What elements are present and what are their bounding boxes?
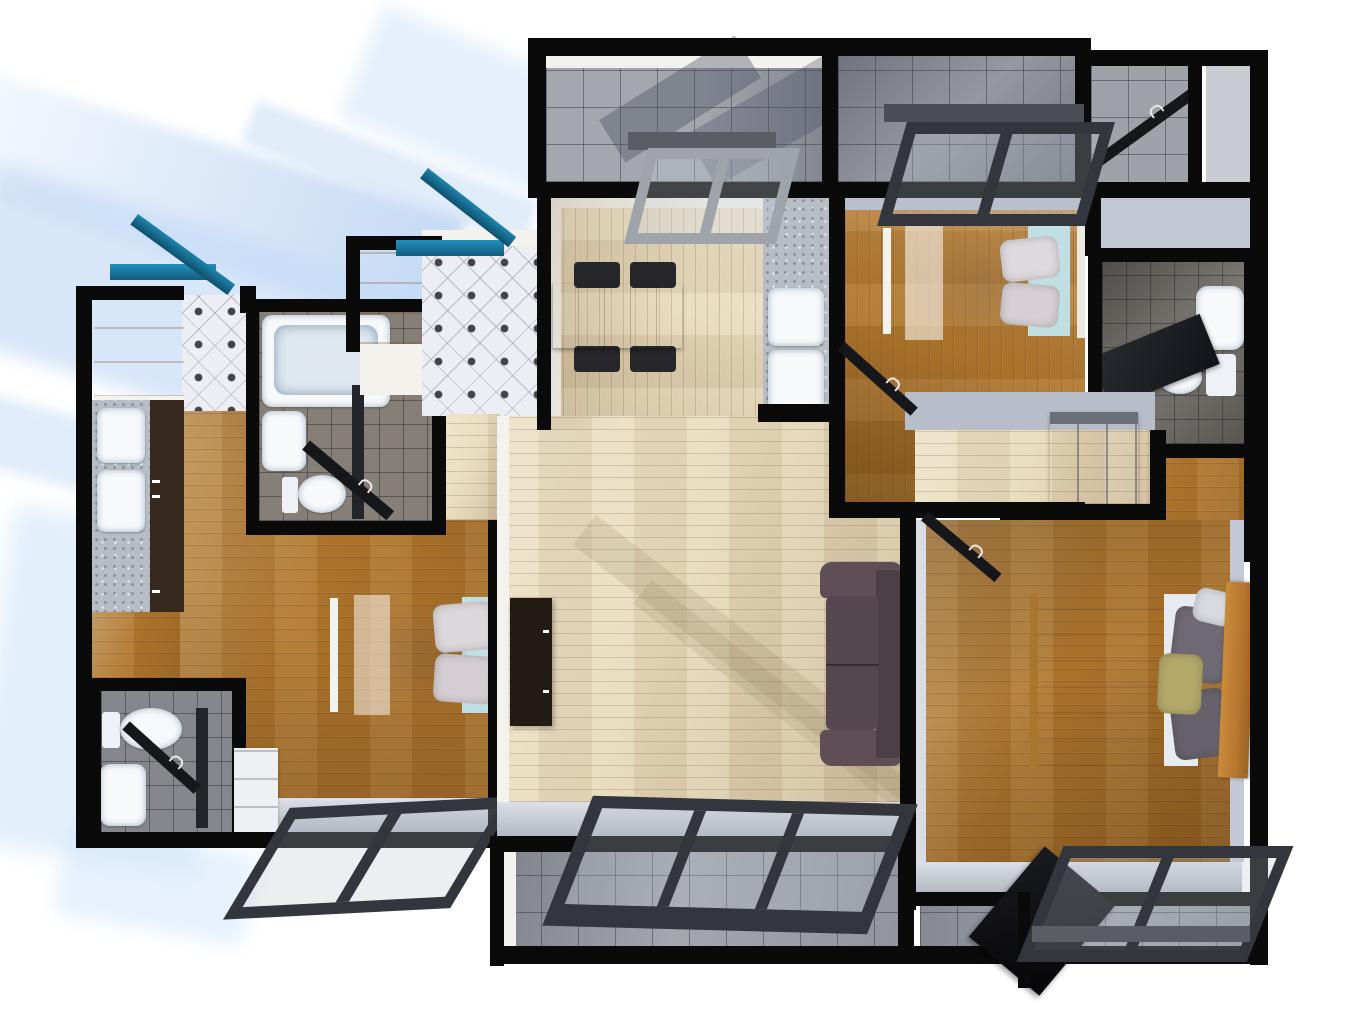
bedroom1-window-lintel bbox=[884, 104, 1084, 122]
wall-west-upper bbox=[528, 38, 546, 198]
window-mullion bbox=[657, 811, 706, 907]
dining-balcony-door-frame bbox=[624, 148, 800, 244]
wall-north bbox=[528, 38, 1088, 56]
bed-pillow bbox=[999, 235, 1061, 283]
studio-wardrobe bbox=[94, 293, 184, 397]
main-foyer-tile bbox=[422, 246, 538, 416]
studio-drawer-unit bbox=[234, 748, 278, 834]
wall-dining-west bbox=[537, 190, 551, 430]
sofa-seat bbox=[826, 596, 878, 730]
hall-floor bbox=[446, 414, 500, 520]
studio-entry-door-leaf bbox=[130, 214, 235, 295]
studio-kitchen-sink bbox=[97, 408, 145, 463]
wall-north bbox=[1088, 50, 1268, 66]
master-window-frame bbox=[1017, 846, 1294, 962]
wall-hallway-end bbox=[1150, 430, 1166, 520]
living-wall-face bbox=[497, 416, 509, 802]
tv-console bbox=[510, 598, 552, 726]
hall-wardrobe bbox=[1050, 412, 1138, 516]
floor-plan-render bbox=[0, 0, 1345, 1009]
balcony-wall-face bbox=[504, 850, 516, 950]
wall-south-outer bbox=[490, 946, 914, 964]
bathroom-wall bbox=[246, 299, 259, 535]
door-mullion bbox=[700, 159, 729, 233]
studio-wall-north bbox=[76, 286, 184, 300]
wall-kitchen-bedroom bbox=[829, 196, 845, 516]
master-wall-face bbox=[916, 520, 926, 862]
master-window-sill bbox=[1032, 926, 1250, 942]
wall-balcony-utility bbox=[822, 38, 838, 198]
studio-wall-west bbox=[76, 286, 92, 848]
dining-table bbox=[552, 284, 682, 348]
bed-pillow bbox=[999, 282, 1060, 329]
main-entry-door-bar bbox=[396, 240, 504, 256]
bedroom1-window-frame bbox=[877, 122, 1115, 226]
bed-duvet-striped bbox=[1036, 594, 1164, 766]
dining-chair bbox=[630, 346, 676, 372]
wall-face bbox=[360, 353, 422, 395]
hall-wardrobe-top bbox=[1050, 412, 1138, 424]
studio-wall-north bbox=[240, 286, 256, 313]
toilet-tank bbox=[282, 477, 298, 513]
bed-pillow bbox=[432, 653, 495, 705]
studio-kitchen-cabinets bbox=[150, 400, 184, 612]
bed-rail bbox=[330, 598, 338, 712]
wall-east-outer bbox=[1250, 50, 1268, 965]
window-mullion bbox=[336, 814, 402, 903]
wall-top-right-south bbox=[1075, 182, 1268, 198]
door-frame bbox=[196, 708, 208, 828]
main-wardrobe bbox=[360, 248, 422, 344]
wall-face bbox=[1090, 198, 1250, 250]
wall-hallway-south bbox=[1000, 504, 1155, 520]
wc-wall bbox=[88, 678, 246, 691]
toilet-tank bbox=[102, 712, 120, 748]
bathroom-sink bbox=[262, 411, 306, 471]
bed-frame-edge bbox=[1077, 224, 1085, 338]
bedroom1-bed bbox=[883, 220, 1085, 342]
kitchen-sink bbox=[768, 350, 824, 412]
living-window-frame bbox=[542, 796, 917, 935]
kitchen-sink bbox=[768, 288, 824, 346]
window-mullion bbox=[755, 813, 804, 909]
bed-pillow-olive bbox=[1156, 653, 1203, 715]
sofa bbox=[820, 562, 904, 766]
studio-kitchen-sink bbox=[97, 470, 145, 532]
studio-water-closet bbox=[88, 678, 246, 848]
wc-sink bbox=[100, 764, 146, 826]
window-mullion bbox=[977, 134, 1012, 214]
bathroom-wall bbox=[246, 521, 446, 535]
main-wardrobe-edge bbox=[360, 344, 422, 353]
bathroom-wall bbox=[1088, 248, 1258, 262]
master-bed bbox=[1026, 582, 1254, 778]
kitchen-end-wall bbox=[758, 404, 832, 422]
foyer-wall bbox=[346, 240, 360, 352]
bed-rail bbox=[883, 228, 891, 334]
studio-floor-kitchen-patch bbox=[92, 610, 180, 678]
bed-pillow bbox=[432, 600, 496, 653]
studio-bed bbox=[330, 593, 502, 719]
dining-chair bbox=[574, 346, 620, 372]
studio-foyer-tile bbox=[182, 295, 248, 411]
wall-rooms-divider bbox=[1188, 60, 1202, 186]
corner-room-floor bbox=[1206, 66, 1252, 186]
